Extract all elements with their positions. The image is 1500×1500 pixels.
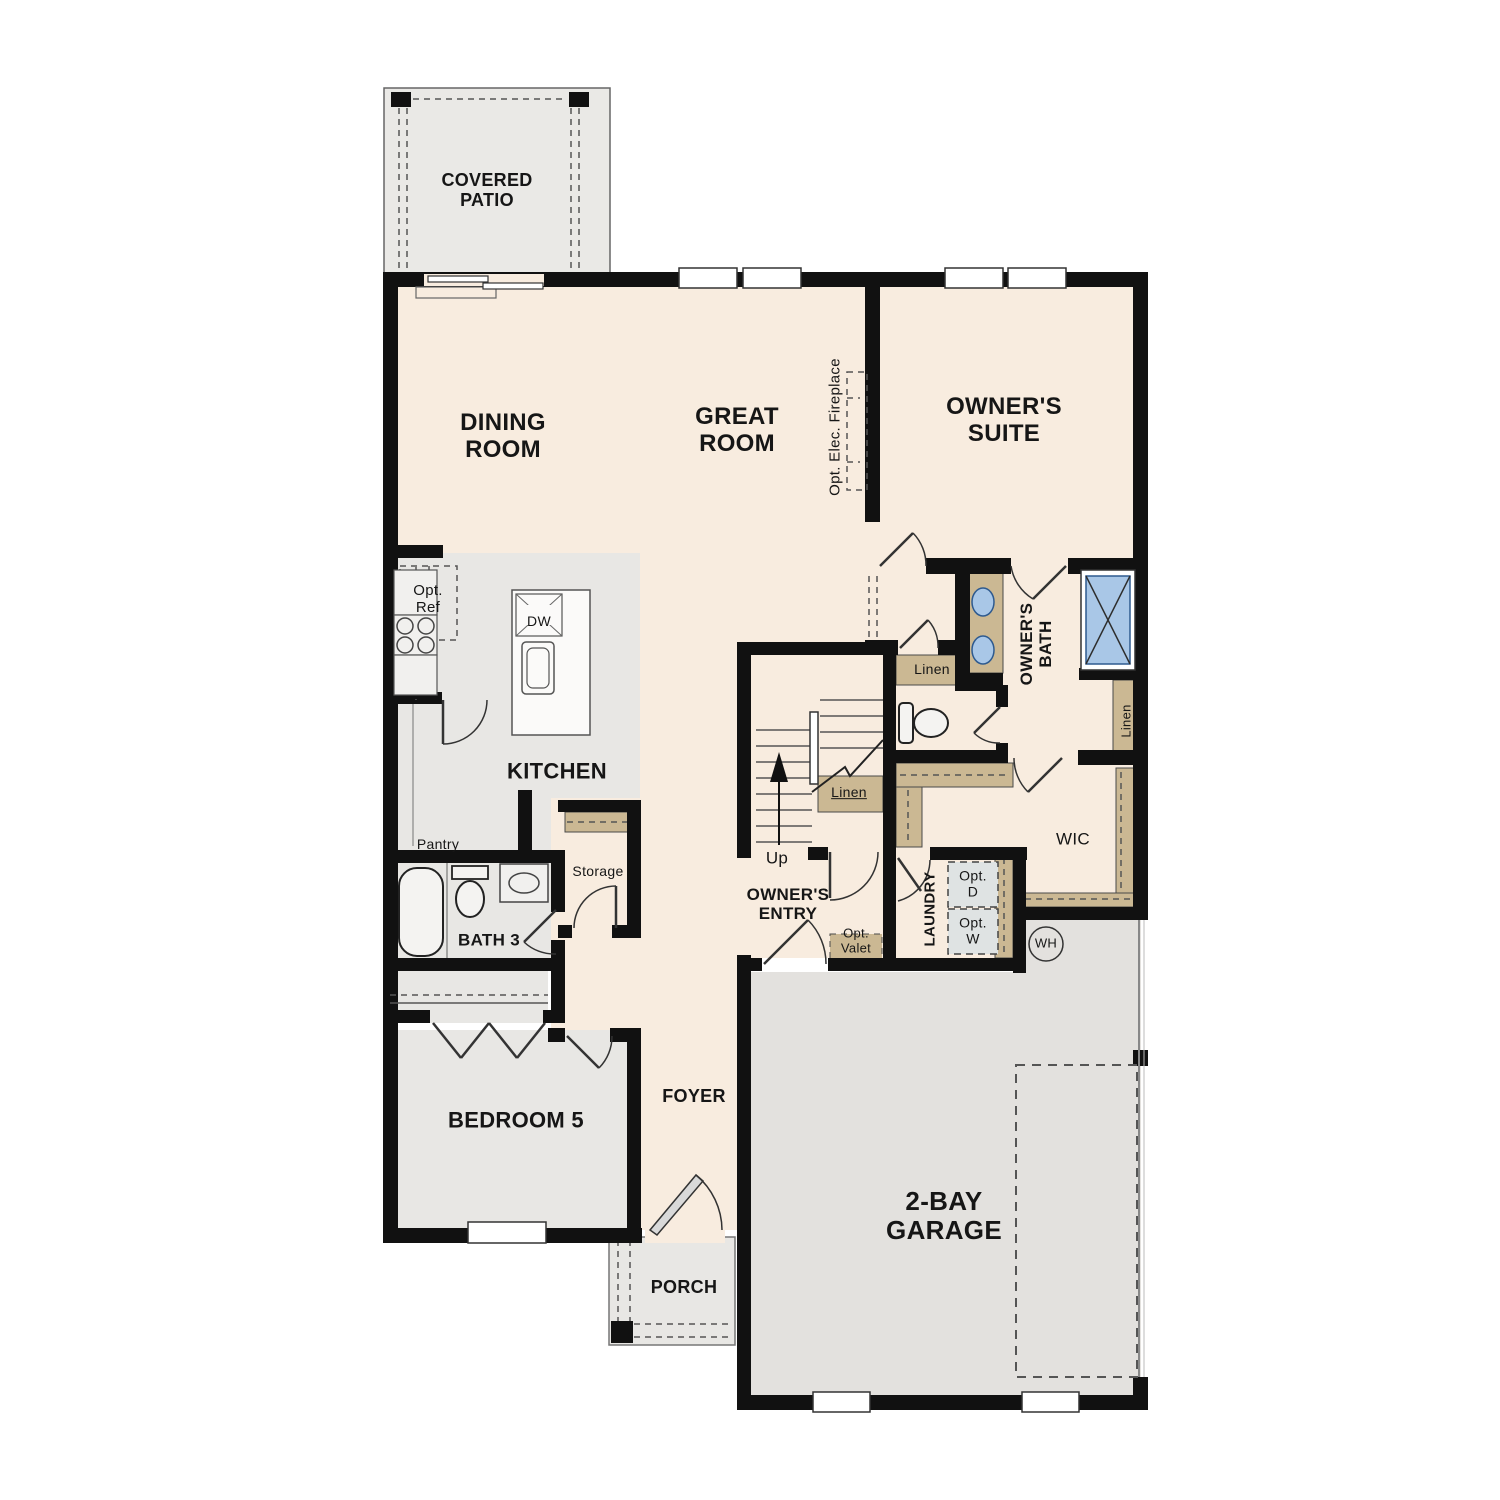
label-linen-right: Linen [1120,704,1135,737]
label-great-room: GREAT ROOM [695,404,779,458]
sliding-door-panel [428,276,488,282]
patio-post [569,92,589,107]
label-porch: PORCH [651,1277,718,1297]
window [468,1222,546,1243]
toilet-tank [452,866,488,879]
label-covered-patio: COVERED PATIO [441,170,532,210]
floor-plan: COVERED PATIO DINING ROOM GREAT ROOM OWN… [0,0,1500,1500]
label-opt-elec-fireplace: Opt. Elec. Fireplace [828,358,845,496]
label-foyer: FOYER [662,1086,726,1106]
window [679,268,737,288]
label-up: Up [766,848,788,867]
floor-plan-drawing [0,0,1500,1500]
label-opt-d: Opt. D [959,868,987,899]
window [813,1392,870,1412]
window [1008,268,1066,288]
wic-shelf-left [896,787,922,847]
label-kitchen: KITCHEN [507,760,607,785]
vanity-sink [972,588,994,616]
label-dishwasher: DW [527,614,551,630]
toilet-bowl [456,881,484,917]
label-opt-w: Opt. W [959,915,987,946]
label-bath3: BATH 3 [458,930,520,949]
label-storage: Storage [572,864,623,880]
sink-counter [500,864,548,902]
label-linen-stairs: Linen [831,785,867,801]
label-bedroom5: BEDROOM 5 [448,1109,584,1134]
label-laundry: LAUNDRY [923,872,940,947]
vanity-sink [972,636,994,664]
window [1022,1392,1079,1412]
patio-post [391,92,411,107]
label-opt-valet: Opt. Valet [841,926,871,955]
porch-post [611,1321,633,1343]
label-owners-entry: OWNER'S ENTRY [747,885,830,923]
garage-area [751,920,1141,1395]
counter [394,655,437,695]
stair-rail [810,712,818,784]
label-wh: WH [1035,937,1057,952]
cooktop [394,615,437,655]
label-owners-suite: OWNER'S SUITE [946,394,1062,448]
toilet-tank [899,703,913,743]
label-dining-room: DINING ROOM [460,410,546,464]
window [945,268,1003,288]
label-wic: WIC [1056,829,1090,848]
toilet-bowl [914,709,948,737]
label-owners-bath: OWNER'S BATH [1017,603,1055,686]
sliding-door-panel [483,283,543,289]
bathtub [399,868,443,956]
window [743,268,801,288]
label-pantry: Pantry [417,837,459,853]
label-opt-ref: Opt. Ref [413,583,443,617]
wic-shelf-bottom [1021,893,1141,907]
label-linen-vestibule: Linen [914,662,950,678]
label-garage: 2-BAY GARAGE [886,1187,1002,1245]
